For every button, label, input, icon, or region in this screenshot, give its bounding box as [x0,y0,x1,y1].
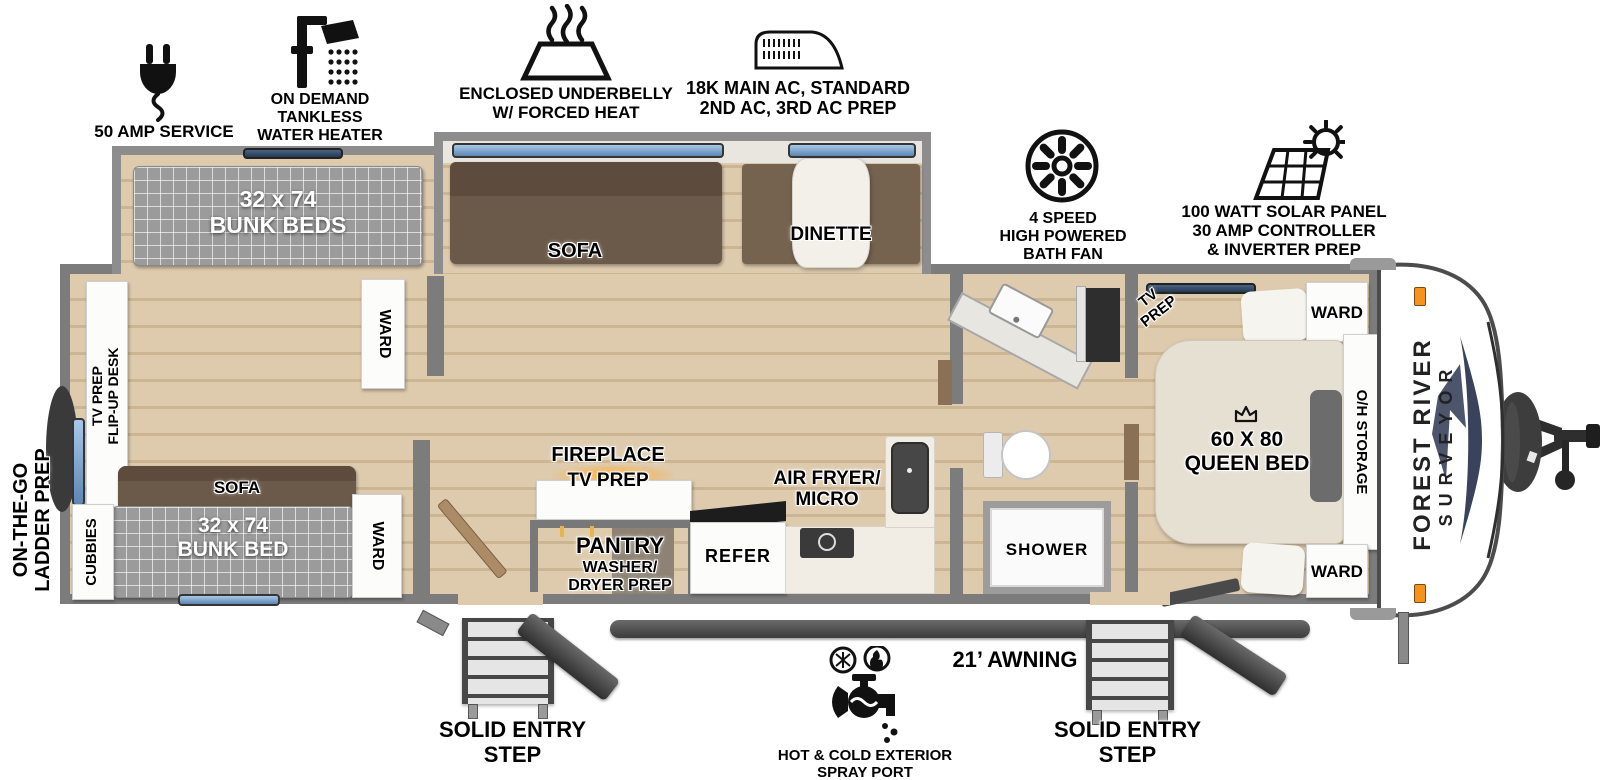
oh-storage-text: O/H STORAGE [1352,362,1369,522]
desk-text: FLIP-UP DESK [106,316,122,476]
cap-roof-corner-bottom [1350,608,1396,620]
cubbies-label: CUBBIES [84,492,102,612]
medicine-cabinet [1086,288,1120,362]
brand-surveyor: SURVEYOR [1436,319,1458,569]
bunk-bed-label: 32 x 74 BUNK BED [113,514,353,562]
queen-bed-label: 60 X 80 QUEEN BED [1157,428,1337,475]
bunk-slide-window [243,148,343,159]
feature-text: 50 AMP SERVICE [74,122,254,141]
feature-label-bath-fan: 4 SPEED HIGH POWERED BATH FAN [973,210,1153,264]
spray-port-icon [824,646,908,746]
feature-label-50amp: 50 AMP SERVICE [74,122,254,141]
toilet-bowl [1001,430,1051,480]
cubbies-text: CUBBIES [84,492,101,612]
shower-head-icon [291,12,359,92]
toilet-tank [983,432,1003,478]
bath-wall-right-bottom [1125,482,1138,598]
bath-wall-left-bottom [950,468,963,594]
dinette-window [788,143,916,158]
crown-icon [1233,404,1259,424]
brand-decal: FOREST RIVER SURVEYOR [1410,319,1466,569]
feature-text: ON DEMAND [230,91,410,109]
feature-text: HIGH POWERED [973,228,1153,246]
bunk-size: 32 x 74 [113,514,353,538]
bath-fan-icon [1024,128,1100,204]
bunkroom-ward-top-label: WARD [373,289,393,379]
tv-prep-desk-label: TV PREP FLIP-UP DESK [90,316,124,476]
marker-light-top [1414,287,1426,306]
feature-text: 2ND AC, 3RD AC PREP [668,98,928,118]
bunk-beds-label: 32 x 74 BUNK BEDS [148,186,408,239]
feature-text: 4 SPEED [973,210,1153,228]
ward-text: WARD [368,501,386,591]
fireplace-label: FIREPLACE [528,444,688,466]
feature-text: & INVERTER PREP [1154,240,1414,259]
awning-label: 21’ AWNING [925,648,1105,673]
bunk-beds-size: 32 x 74 [148,186,408,212]
desk-text: TV PREP [90,316,106,476]
tongue-jack-leg [1398,612,1409,664]
air-fryer-text: AIR FRYER/ [747,468,907,489]
cap-roof-corner-top [1350,258,1396,270]
feature-label-underbelly: ENCLOSED UNDERBELLY W/ FORCED HEAT [456,84,676,122]
burner [818,533,836,551]
spray-text: SPRAY PORT [770,765,960,780]
bunk-beds-name: BUNK BEDS [148,212,408,238]
dinette-bench-right [862,164,920,264]
ac-unit-icon [752,28,844,70]
spray-text: HOT & COLD EXTERIOR [770,748,960,765]
slide-sofa-label: SOFA [515,240,635,262]
bunkroom-wall-lower [413,440,430,598]
bunkroom-bottom-window [178,594,280,606]
washer-text: WASHER/ [540,559,700,577]
step-label-right: SOLID ENTRY STEP [1040,718,1215,767]
shower-text: SHOWER [985,540,1109,559]
bunkroom-ward-bottom-label: WARD [368,501,386,591]
tv-prep-text: TV PREP [528,470,688,491]
shower-label: SHOWER [985,540,1109,559]
sink-drain [907,468,912,473]
feature-text: 30 AMP CONTROLLER [1154,221,1414,240]
marker-light-bottom [1414,584,1426,603]
step-text: SOLID ENTRY [425,718,600,743]
dinette-table [792,158,870,268]
step-text: SOLID ENTRY [1040,718,1215,743]
ward-text: WARD [375,289,393,379]
ward-text: WARD [1306,303,1368,322]
sofa-text: SOFA [515,240,635,262]
feature-text: TANKLESS [230,109,410,127]
bunkroom-sofa-label: SOFA [187,478,287,497]
feature-text: ENCLOSED UNDERBELLY [456,84,676,103]
medicine-cabinet-side [1076,286,1086,362]
entry-opening-right [1090,592,1170,605]
entry-opening-left [458,592,543,605]
washer-dryer-label: WASHER/ DRYER PREP [540,559,700,595]
bedroom-dresser [1124,424,1139,480]
bed-size-text: 60 X 80 [1157,428,1337,452]
refer-label: REFER [690,546,786,566]
feature-text: WATER HEATER [230,127,410,145]
tv-prep-label: TV PREP [528,470,688,491]
refer-text: REFER [690,546,786,566]
feature-text: BATH FAN [973,246,1153,264]
dinette-text: DINETTE [761,224,901,245]
sofa-window [452,143,724,158]
bedroom-ward-top-label: WARD [1306,303,1368,322]
air-fryer-text: MICRO [747,489,907,510]
washer-text: DRYER PREP [540,577,700,595]
air-fryer-label: AIR FRYER/ MICRO [747,468,907,511]
bunkroom-wall-upper [427,276,444,376]
feature-label-water-heater: ON DEMAND TANKLESS WATER HEATER [230,91,410,145]
awning-text: 21’ AWNING [925,648,1105,673]
bunk-name: BUNK BED [113,538,353,562]
ladder-text: ON-THE-GO [10,420,32,620]
bedroom-ward-bottom-label: WARD [1306,562,1368,581]
bed-name-text: QUEEN BED [1157,452,1337,476]
slide-sofa-back [450,162,722,196]
sofa-text: SOFA [187,478,287,497]
bed-pillow-bottom [1240,542,1305,596]
power-plug-icon [138,44,178,122]
brand-forest-river: FOREST RIVER [1410,319,1436,569]
bath-cabinet [938,360,952,405]
fireplace-text: FIREPLACE [528,444,688,466]
bed-pillow-top [1240,288,1309,344]
pantry-label: PANTRY [540,534,700,559]
pantry-text: PANTRY [540,534,700,559]
oh-storage-label: O/H STORAGE [1353,362,1369,522]
step-text: STEP [1040,743,1215,768]
step-label-left: SOLID ENTRY STEP [425,718,600,767]
ladder-prep-label: ON-THE-GO LADDER PREP [10,420,52,620]
ward-text: WARD [1306,562,1368,581]
feature-label-solar: 100 WATT SOLAR PANEL 30 AMP CONTROLLER &… [1154,202,1414,259]
step-text: STEP [425,743,600,768]
spray-port-label: HOT & COLD EXTERIOR SPRAY PORT [770,748,960,780]
floorplan-canvas: 50 AMP SERVICE ON DEMAND TANKLESS WATER … [0,0,1600,780]
feature-text: 100 WATT SOLAR PANEL [1154,202,1414,221]
underbelly-heat-icon [520,4,612,82]
dinette-label: DINETTE [761,224,901,245]
stabilizer-jack-rear [416,610,449,636]
ladder-text: LADDER PREP [32,420,54,620]
feature-text: W/ FORCED HEAT [456,103,676,122]
feature-label-ac: 18K MAIN AC, STANDARD 2ND AC, 3RD AC PRE… [668,78,928,118]
solar-panel-icon [1250,120,1345,205]
feature-text: 18K MAIN AC, STANDARD [668,78,928,98]
